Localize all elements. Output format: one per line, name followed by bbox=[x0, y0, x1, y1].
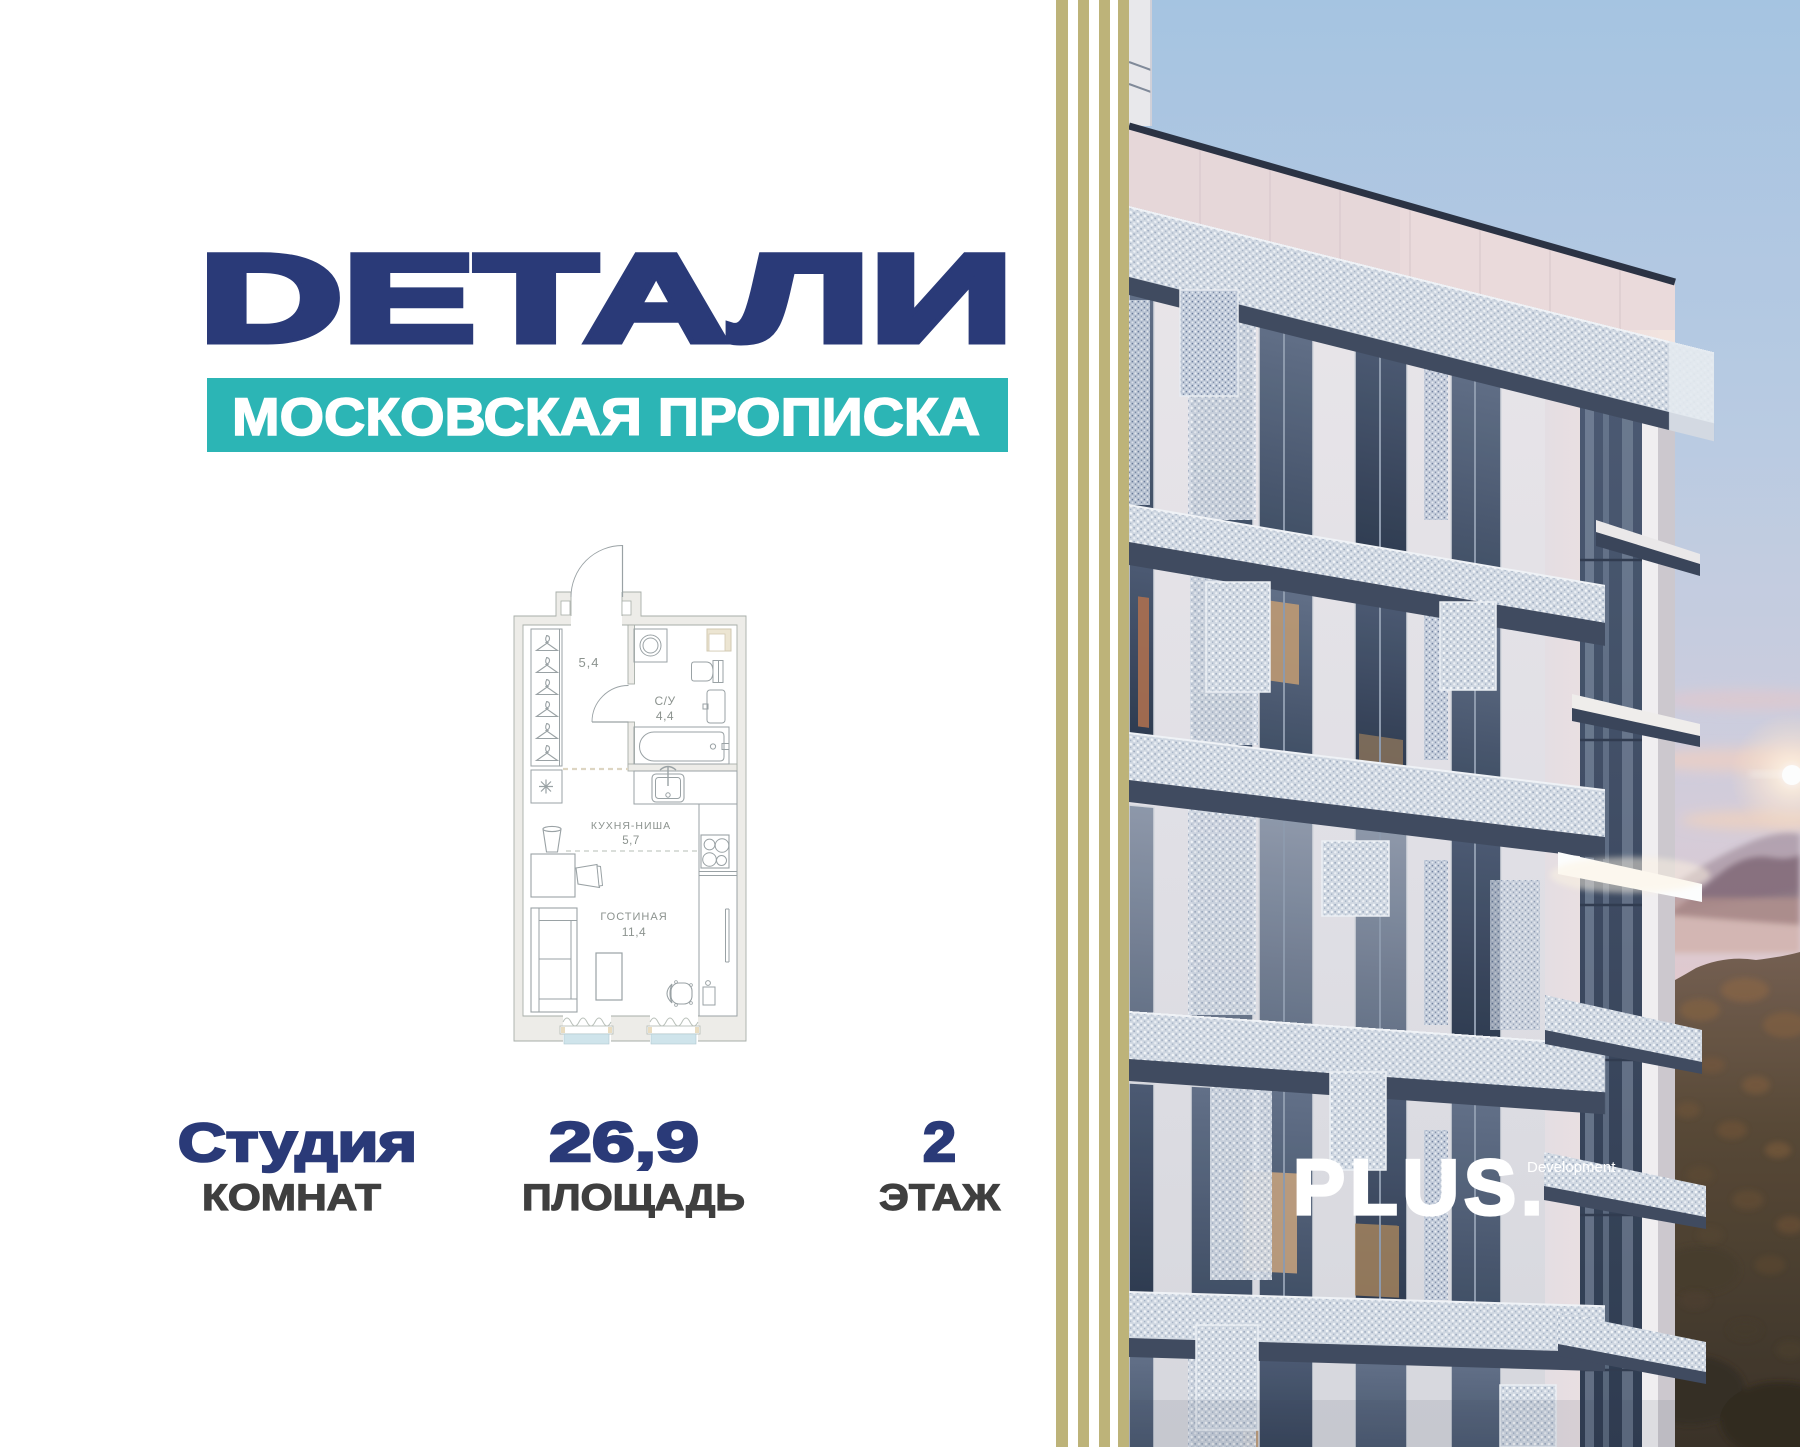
svg-text:КУХНЯ-НИША: КУХНЯ-НИША bbox=[591, 820, 671, 832]
svg-text:2: 2 bbox=[923, 1110, 956, 1173]
svg-text:26,9: 26,9 bbox=[549, 1110, 699, 1173]
svg-text:11,4: 11,4 bbox=[622, 925, 646, 939]
svg-text:ПЛОЩАДЬ: ПЛОЩАДЬ bbox=[522, 1177, 745, 1218]
svg-text:МОСКОВСКАЯ ПРОПИСКА: МОСКОВСКАЯ ПРОПИСКА bbox=[232, 388, 980, 447]
svg-text:DЕТАЛИ: DЕТАЛИ bbox=[207, 240, 1008, 350]
svg-text:ЭТАЖ: ЭТАЖ bbox=[879, 1177, 1001, 1218]
svg-text:С/У: С/У bbox=[654, 694, 675, 708]
svg-text:4,4: 4,4 bbox=[656, 709, 674, 723]
svg-text:ГОСТИНАЯ: ГОСТИНАЯ bbox=[600, 911, 667, 923]
svg-text:PLUS.: PLUS. bbox=[1293, 1143, 1548, 1231]
svg-text:Студия: Студия bbox=[178, 1113, 417, 1173]
svg-text:5,7: 5,7 bbox=[622, 835, 640, 847]
svg-text:5,4: 5,4 bbox=[578, 655, 599, 670]
svg-text:Development: Development bbox=[1527, 1159, 1616, 1176]
svg-text:КОМНАТ: КОМНАТ bbox=[202, 1177, 381, 1218]
